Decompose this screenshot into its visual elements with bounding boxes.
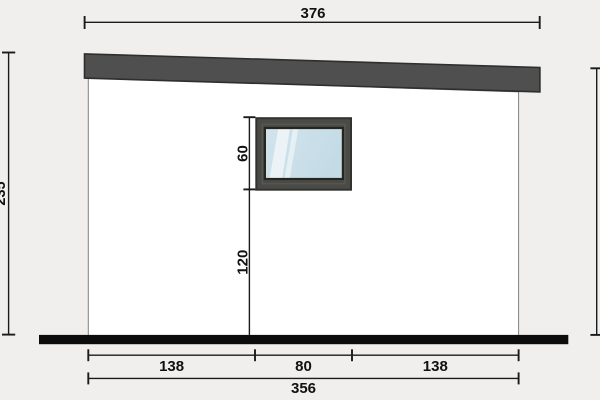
svg-text:120: 120 (234, 250, 251, 275)
svg-text:80: 80 (295, 358, 312, 375)
svg-text:356: 356 (291, 380, 316, 397)
svg-text:60: 60 (234, 145, 251, 162)
svg-text:376: 376 (300, 5, 325, 22)
svg-text:235: 235 (0, 181, 9, 205)
svg-text:138: 138 (159, 358, 184, 375)
svg-text:138: 138 (423, 358, 448, 375)
